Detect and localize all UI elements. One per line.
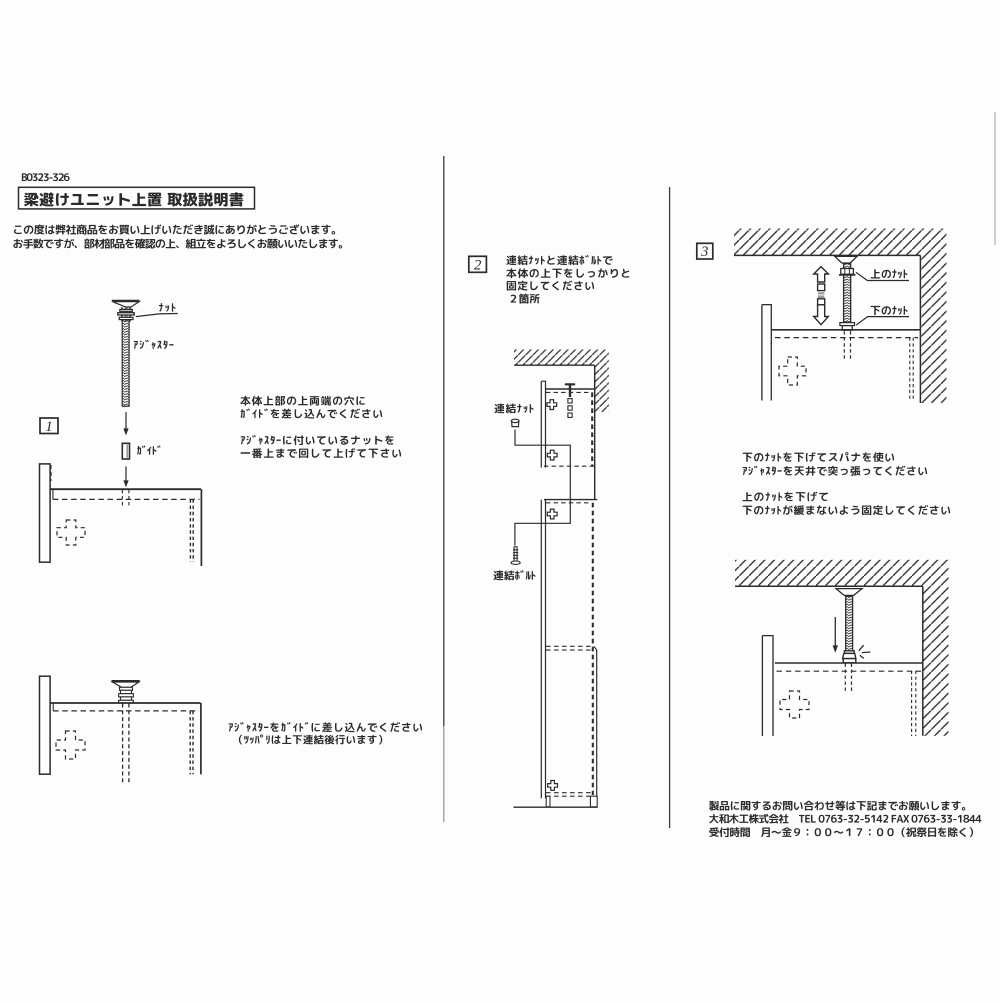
svg-text:3: 3 [700,244,708,260]
svg-text:1: 1 [45,419,53,435]
svg-text:2: 2 [474,258,482,274]
